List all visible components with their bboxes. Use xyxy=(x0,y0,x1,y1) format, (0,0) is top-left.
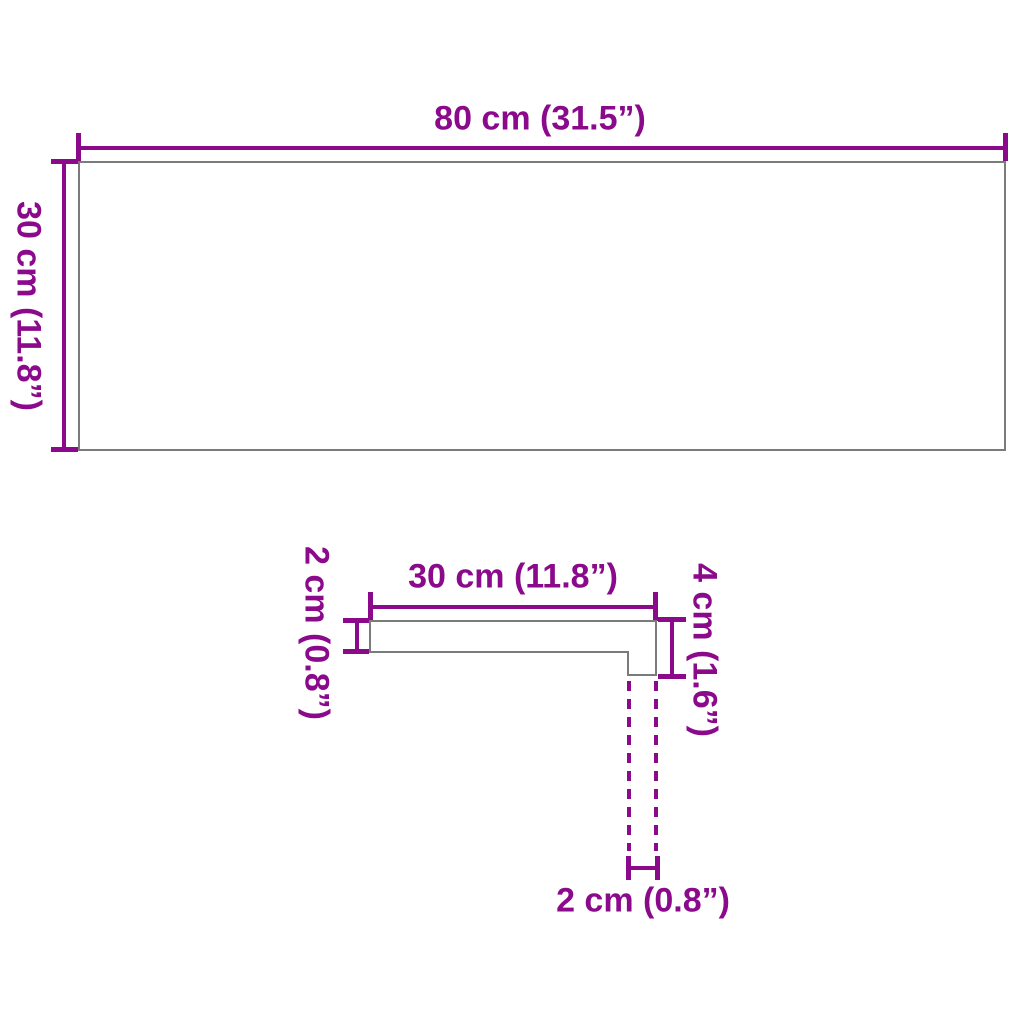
projection-dashed-line xyxy=(654,681,658,851)
profile-nose-depth-label: 2 cm (0.8”) xyxy=(556,882,730,921)
dimension-tick xyxy=(51,159,78,164)
panel-rectangle xyxy=(78,161,1006,451)
top-width-dimension-line xyxy=(78,146,1006,150)
dimension-tick xyxy=(76,133,81,161)
profile-thickness-label: 2 cm (0.8”) xyxy=(297,546,336,720)
profile-outline xyxy=(369,620,659,678)
top-height-dimension-line xyxy=(62,161,66,451)
dimension-tick xyxy=(343,649,369,654)
dimension-tick xyxy=(658,617,686,622)
profile-width-label: 30 cm (11.8”) xyxy=(408,558,618,597)
dimension-tick xyxy=(51,447,78,452)
profile-width-dimension-line xyxy=(370,605,656,609)
dimension-tick xyxy=(368,592,373,621)
profile-thickness-dimension-line xyxy=(355,621,359,652)
profile-nose-height-label: 4 cm (1.6”) xyxy=(685,563,724,737)
dimension-diagram: 80 cm (31.5”) 30 cm (11.8”) 30 cm (11.8”… xyxy=(0,0,1024,1024)
dimension-tick xyxy=(655,856,660,880)
top-height-label: 30 cm (11.8”) xyxy=(9,201,48,411)
profile-nose-depth-dimension-line xyxy=(628,866,658,870)
top-width-label: 80 cm (31.5”) xyxy=(434,100,646,139)
projection-dashed-line xyxy=(627,681,631,851)
dimension-tick xyxy=(1003,133,1008,161)
dimension-tick xyxy=(343,618,369,623)
profile-nose-height-dimension-line xyxy=(670,620,674,678)
profile-outline-shape xyxy=(370,621,656,675)
dimension-tick xyxy=(658,674,686,679)
dimension-tick xyxy=(626,856,631,880)
